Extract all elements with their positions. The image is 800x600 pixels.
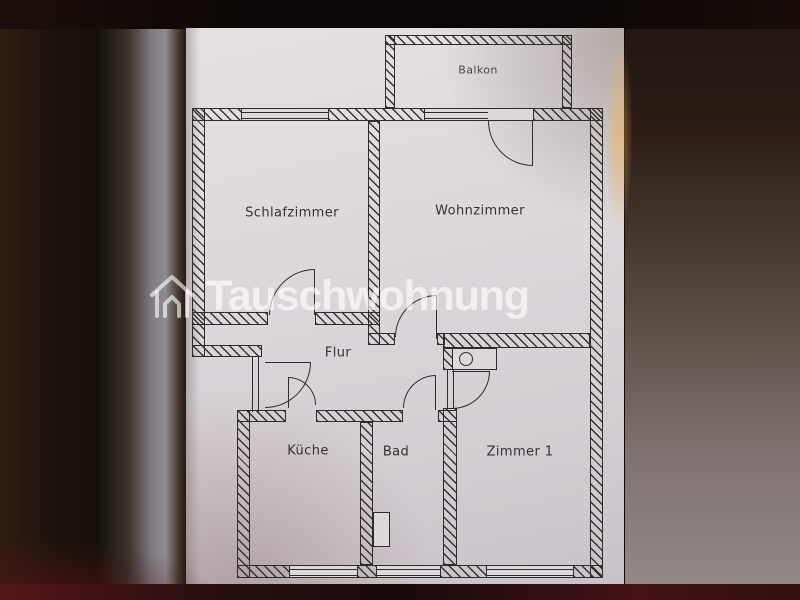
photo-scene: Balkon Schlafzimmer Wohnzimmer Flur Küch…	[0, 0, 800, 600]
door-leaf-balkon	[532, 121, 533, 166]
door-arc-bad	[403, 375, 436, 408]
bath-wc-fixture	[373, 512, 390, 547]
wall-top-2	[328, 108, 425, 121]
room-label-zimmer1: Zimmer 1	[487, 445, 554, 460]
door-leaf-entrance	[265, 362, 311, 363]
background-right-shadow	[621, 0, 800, 600]
watermark-brand-text: Tauschwohnung	[206, 275, 529, 318]
room-label-flur: Flur	[325, 346, 351, 361]
wall-bottom-2	[357, 565, 377, 578]
room-label-schlafzimmer: Schlafzimmer	[245, 206, 339, 221]
wall-nook-top	[443, 333, 590, 348]
window-pane	[486, 569, 574, 576]
window-pane	[424, 112, 489, 119]
wall-bottom-3	[440, 565, 487, 578]
photo-bottom-edge	[0, 584, 800, 600]
door-arc-kueche	[288, 377, 316, 405]
watermark: Tauschwohnung	[148, 269, 529, 323]
room-label-wohnzimmer: Wohnzimmer	[435, 204, 525, 219]
wall-right-outer	[590, 108, 603, 578]
window-pane	[241, 112, 329, 119]
window-pane	[376, 569, 441, 576]
background-top-shadow	[0, 0, 800, 29]
wall-wohnzimmer-bottom-1	[368, 333, 395, 345]
window-bad	[377, 565, 440, 578]
wall-flur-bottom-2	[316, 410, 403, 422]
wall-balkon-left	[385, 35, 395, 108]
balcony-door-threshold	[488, 108, 533, 121]
wall-bottom-1	[237, 565, 290, 578]
house-icon	[148, 273, 196, 319]
window-kueche	[290, 565, 357, 578]
door-arc-zimmer1	[452, 371, 490, 409]
door-leaf-bad	[435, 375, 436, 410]
door-leaf-zimmer1	[452, 371, 490, 372]
wall-bottom-4	[573, 565, 603, 578]
zimmer1-door-wall-line	[447, 370, 448, 409]
door-leaf-kueche	[288, 377, 289, 408]
room-label-kueche: Küche	[287, 444, 329, 459]
wall-balkon-right	[562, 35, 572, 108]
door-arc-balkon	[488, 121, 533, 166]
basin-circle-icon	[459, 352, 473, 366]
window-zimmer1	[487, 565, 573, 578]
wall-balkon-top	[385, 35, 572, 45]
window-wohnzimmer	[425, 108, 488, 121]
paper-edge-glow	[605, 35, 633, 235]
room-label-bad: Bad	[383, 445, 409, 460]
window-pane	[289, 569, 358, 576]
wall-kueche-bad-divider	[360, 422, 373, 565]
window-schlafzimmer	[242, 108, 328, 121]
wall-kueche-left-outer	[237, 410, 250, 578]
room-label-balkon: Balkon	[458, 64, 497, 77]
entry-wall-line	[252, 357, 253, 412]
wall-entry-step	[192, 345, 262, 357]
wall-bad-zimmer1-divider	[443, 408, 457, 565]
entry-wall-line	[258, 357, 259, 412]
